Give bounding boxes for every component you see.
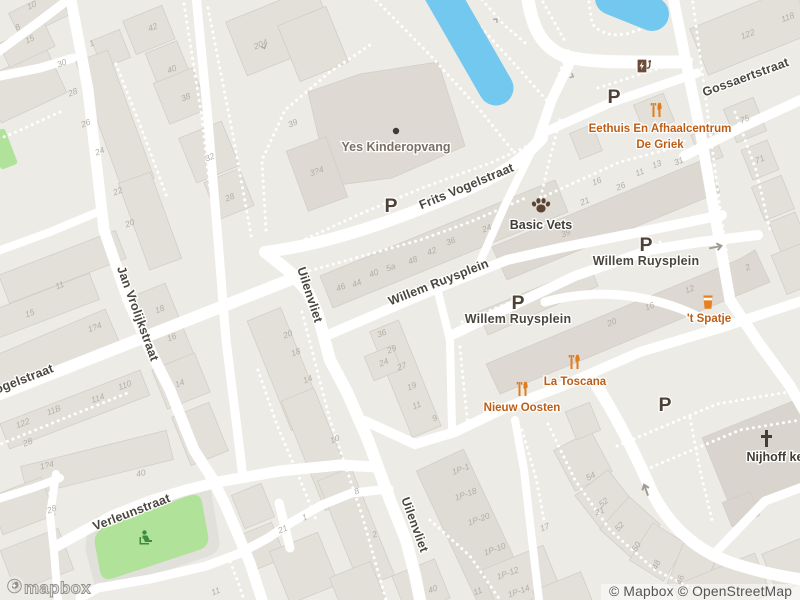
svg-text:De Griek: De Griek: [636, 139, 684, 151]
svg-text:Eethuis En Afhaalcentrum: Eethuis En Afhaalcentrum: [589, 123, 732, 135]
svg-text:P: P: [639, 234, 652, 256]
svg-text:Willem Ruysplein: Willem Ruysplein: [593, 254, 700, 268]
svg-text:La Toscana: La Toscana: [544, 376, 607, 388]
svg-text:Yes Kinderopvang: Yes Kinderopvang: [341, 140, 450, 154]
svg-text:Nieuw Oosten: Nieuw Oosten: [484, 402, 561, 414]
svg-text:P: P: [384, 195, 397, 217]
svg-text:P: P: [607, 86, 620, 108]
svg-text:'t Spatje: 't Spatje: [687, 313, 731, 325]
svg-text:Willem Ruysplein: Willem Ruysplein: [465, 312, 572, 326]
svg-text:P: P: [658, 394, 671, 416]
svg-text:© Mapbox © OpenStreetMap: © Mapbox © OpenStreetMap: [609, 584, 792, 599]
svg-text:mapbox: mapbox: [24, 579, 91, 598]
svg-text:P: P: [511, 292, 524, 314]
svg-text:Basic Vets: Basic Vets: [510, 218, 573, 232]
svg-text:Nijhoff ke: Nijhoff ke: [747, 450, 800, 464]
